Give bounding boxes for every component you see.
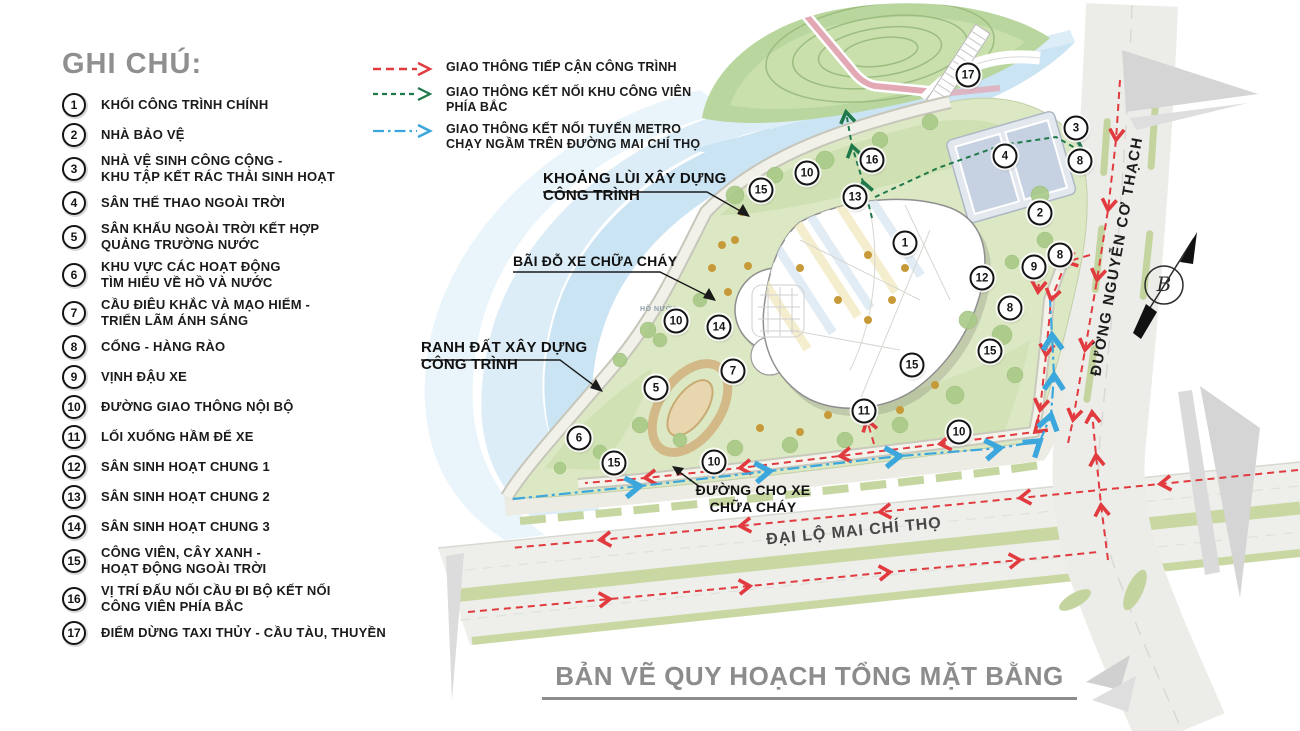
legend-item-number: 14 (62, 515, 86, 539)
legend-item: 7 CẦU ĐIÊU KHẮC VÀ MẠO HIỂM - TRIỂN LÃM … (62, 297, 392, 329)
plan-marker-15: 15 (602, 451, 627, 476)
red-dashed-arrow-icon (372, 61, 436, 77)
legend-item: 5 SÂN KHẤU NGOÀI TRỜI KẾT HỢP QUẢNG TRƯỜ… (62, 221, 392, 253)
legend-item-label: VỊNH ĐẬU XE (101, 369, 187, 385)
legend-item: 4 SÂN THỂ THAO NGOÀI TRỜI (62, 191, 392, 215)
traffic-legend-label: GIAO THÔNG KẾT NỐI KHU CÔNG VIÊN PHÍA BẮ… (446, 85, 691, 114)
traffic-legend-row-access: GIAO THÔNG TIẾP CẬN CÔNG TRÌNH (372, 60, 702, 77)
legend-item-number: 2 (62, 123, 86, 147)
legend-item-label: SÂN SINH HOẠT CHUNG 1 (101, 459, 270, 475)
blue-dashdot-arrow-icon (372, 123, 436, 139)
annotation-boundary: RANH ĐẤT XÂY DỰNG CÔNG TRÌNH (421, 340, 587, 373)
plan-marker-11: 11 (852, 399, 877, 424)
plan-marker-8: 8 (1068, 149, 1093, 174)
legend-item-label: NHÀ BẢO VỆ (101, 127, 185, 143)
plan-marker-14: 14 (707, 315, 732, 340)
legend-item-number: 7 (62, 301, 86, 325)
north-arrow-label: B (1152, 272, 1176, 296)
plan-marker-13: 13 (843, 185, 868, 210)
traffic-legend-row-northpark: GIAO THÔNG KẾT NỐI KHU CÔNG VIÊN PHÍA BẮ… (372, 85, 702, 114)
traffic-legend-label: GIAO THÔNG KẾT NỐI TUYẾN METRO CHẠY NGẦM… (446, 122, 700, 151)
legend-item-number: 11 (62, 425, 86, 449)
legend-item-label: ĐƯỜNG GIAO THÔNG NỘI BỘ (101, 399, 294, 415)
legend-item-label: CÔNG VIÊN, CÂY XANH - HOẠT ĐỘNG NGOÀI TR… (101, 545, 266, 577)
legend-item-label: SÂN KHẤU NGOÀI TRỜI KẾT HỢP QUẢNG TRƯỜNG… (101, 221, 319, 253)
legend-item-label: NHÀ VỆ SINH CÔNG CỘNG - KHU TẬP KẾT RÁC … (101, 153, 335, 185)
legend-item: 16 VỊ TRÍ ĐẤU NỐI CẦU ĐI BỘ KẾT NỐI CÔNG… (62, 583, 392, 615)
legend-item: 6 KHU VỰC CÁC HOẠT ĐỘNG TÌM HIỂU VỀ HỒ V… (62, 259, 392, 291)
legend-item-label: SÂN THỂ THAO NGOÀI TRỜI (101, 195, 285, 211)
plan-marker-3: 3 (1064, 116, 1089, 141)
plan-marker-5: 5 (644, 376, 669, 401)
legend-item-label: SÂN SINH HOẠT CHUNG 2 (101, 489, 270, 505)
plan-marker-8: 8 (998, 296, 1023, 321)
green-dashed-arrow-icon (372, 86, 436, 102)
legend-item: 12 SÂN SINH HOẠT CHUNG 1 (62, 455, 392, 479)
legend-item-number: 9 (62, 365, 86, 389)
legend-item-label: VỊ TRÍ ĐẤU NỐI CẦU ĐI BỘ KẾT NỐI CÔNG VI… (101, 583, 331, 615)
legend-item-label: LỐI XUỐNG HẦM ĐỂ XE (101, 429, 254, 445)
plan-marker-4: 4 (993, 144, 1018, 169)
plan-marker-7: 7 (721, 359, 746, 384)
plan-marker-10: 10 (702, 450, 727, 475)
traffic-legend: GIAO THÔNG TIẾP CẬN CÔNG TRÌNH GIAO THÔN… (372, 60, 702, 159)
legend-item-number: 16 (62, 587, 86, 611)
plan-marker-15: 15 (900, 353, 925, 378)
legend-item: 8 CỔNG - HÀNG RÀO (62, 335, 392, 359)
legend-item-number: 4 (62, 191, 86, 215)
plan-marker-16: 16 (860, 148, 885, 173)
legend-item-label: ĐIỂM DỪNG TAXI THỦY - CẦU TÀU, THUYỀN (101, 625, 386, 641)
plan-marker-6: 6 (567, 426, 592, 451)
legend-item: 11 LỐI XUỐNG HẦM ĐỂ XE (62, 425, 392, 449)
plan-marker-12: 12 (970, 266, 995, 291)
legend-item: 10 ĐƯỜNG GIAO THÔNG NỘI BỘ (62, 395, 392, 419)
legend-item: 17 ĐIỂM DỪNG TAXI THỦY - CẦU TÀU, THUYỀN (62, 621, 392, 645)
legend-item-label: CẦU ĐIÊU KHẮC VÀ MẠO HIỂM - TRIỂN LÃM ÁN… (101, 297, 310, 329)
legend-item: 2 NHÀ BẢO VỆ (62, 123, 392, 147)
plan-marker-2: 2 (1028, 201, 1053, 226)
legend-item-number: 6 (62, 263, 86, 287)
legend-item-label: CỔNG - HÀNG RÀO (101, 339, 225, 355)
legend-item-number: 13 (62, 485, 86, 509)
legend-item: 14 SÂN SINH HOẠT CHUNG 3 (62, 515, 392, 539)
plan-marker-15: 15 (978, 339, 1003, 364)
traffic-legend-label: GIAO THÔNG TIẾP CẬN CÔNG TRÌNH (446, 60, 677, 75)
annotation-fire-parking: BÃI ĐỖ XE CHỮA CHÁY (513, 253, 677, 270)
legend-item-number: 5 (62, 225, 86, 249)
legend-item: 15 CÔNG VIÊN, CÂY XANH - HOẠT ĐỘNG NGOÀI… (62, 545, 392, 577)
legend-item-label: KHỐI CÔNG TRÌNH CHÍNH (101, 97, 268, 113)
legend-item-number: 8 (62, 335, 86, 359)
plan-marker-8: 8 (1048, 243, 1073, 268)
legend-item-number: 17 (62, 621, 86, 645)
legend-item-number: 12 (62, 455, 86, 479)
legend-item-label: KHU VỰC CÁC HOẠT ĐỘNG TÌM HIỂU VỀ HỒ VÀ … (101, 259, 281, 291)
legend-item: 9 VỊNH ĐẬU XE (62, 365, 392, 389)
legend-title: GHI CHÚ: (62, 48, 392, 81)
legend-item-label: SÂN SINH HOẠT CHUNG 3 (101, 519, 270, 535)
annotation-setback: KHOẢNG LÙI XÂY DỰNG CÔNG TRÌNH (543, 171, 726, 204)
legend-item-number: 15 (62, 549, 86, 573)
plan-marker-9: 9 (1022, 255, 1047, 280)
sheet-title: BẢN VẼ QUY HOẠCH TỔNG MẶT BẰNG (542, 661, 1077, 700)
legend-list: 1 KHỐI CÔNG TRÌNH CHÍNH 2 NHÀ BẢO VỆ 3 N… (62, 93, 392, 645)
annotation-fire-lane: ĐƯỜNG CHO XE CHỮA CHÁY (690, 482, 816, 515)
plan-marker-10: 10 (664, 309, 689, 334)
legend-item: 3 NHÀ VỆ SINH CÔNG CỘNG - KHU TẬP KẾT RÁ… (62, 153, 392, 185)
plan-marker-15: 15 (749, 178, 774, 203)
legend-item: 13 SÂN SINH HOẠT CHUNG 2 (62, 485, 392, 509)
plan-marker-10: 10 (795, 161, 820, 186)
legend-panel: GHI CHÚ: 1 KHỐI CÔNG TRÌNH CHÍNH 2 NHÀ B… (62, 48, 392, 651)
legend-item-number: 3 (62, 157, 86, 181)
legend-item-number: 10 (62, 395, 86, 419)
plan-marker-17: 17 (956, 63, 981, 88)
plan-marker-10: 10 (947, 420, 972, 445)
legend-item: 1 KHỐI CÔNG TRÌNH CHÍNH (62, 93, 392, 117)
plan-marker-1: 1 (893, 231, 918, 256)
traffic-legend-row-metro: GIAO THÔNG KẾT NỐI TUYẾN METRO CHẠY NGẦM… (372, 122, 702, 151)
legend-item-number: 1 (62, 93, 86, 117)
